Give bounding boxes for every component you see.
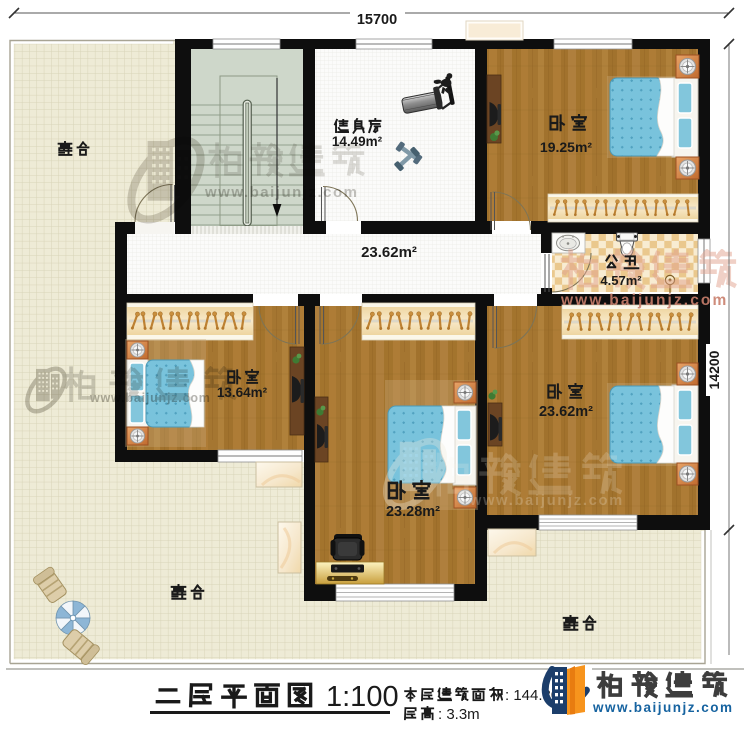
svg-text:www.baijunjz.com: www.baijunjz.com (560, 292, 728, 309)
svg-text:23.62m²: 23.62m² (361, 244, 417, 261)
svg-text:www.baijunjz.com: www.baijunjz.com (204, 184, 358, 201)
svg-text:14200: 14200 (706, 350, 722, 389)
svg-text:15700: 15700 (357, 12, 397, 28)
svg-text:1:100: 1:100 (326, 681, 399, 713)
svg-text:www.baijunjz.com: www.baijunjz.com (469, 493, 624, 509)
svg-text:: 3.3m: : 3.3m (438, 706, 480, 723)
svg-text:www.baijunjz.com: www.baijunjz.com (89, 391, 211, 405)
svg-text:23.62m²: 23.62m² (539, 404, 593, 420)
svg-text:13.64m²: 13.64m² (217, 385, 268, 400)
svg-text:14.49m²: 14.49m² (332, 134, 383, 149)
svg-text:23.28m²: 23.28m² (386, 504, 440, 520)
svg-text:4.57m²: 4.57m² (600, 273, 642, 288)
svg-text:19.25m²: 19.25m² (540, 139, 592, 155)
svg-text:www.baijunjz.com: www.baijunjz.com (592, 700, 734, 715)
